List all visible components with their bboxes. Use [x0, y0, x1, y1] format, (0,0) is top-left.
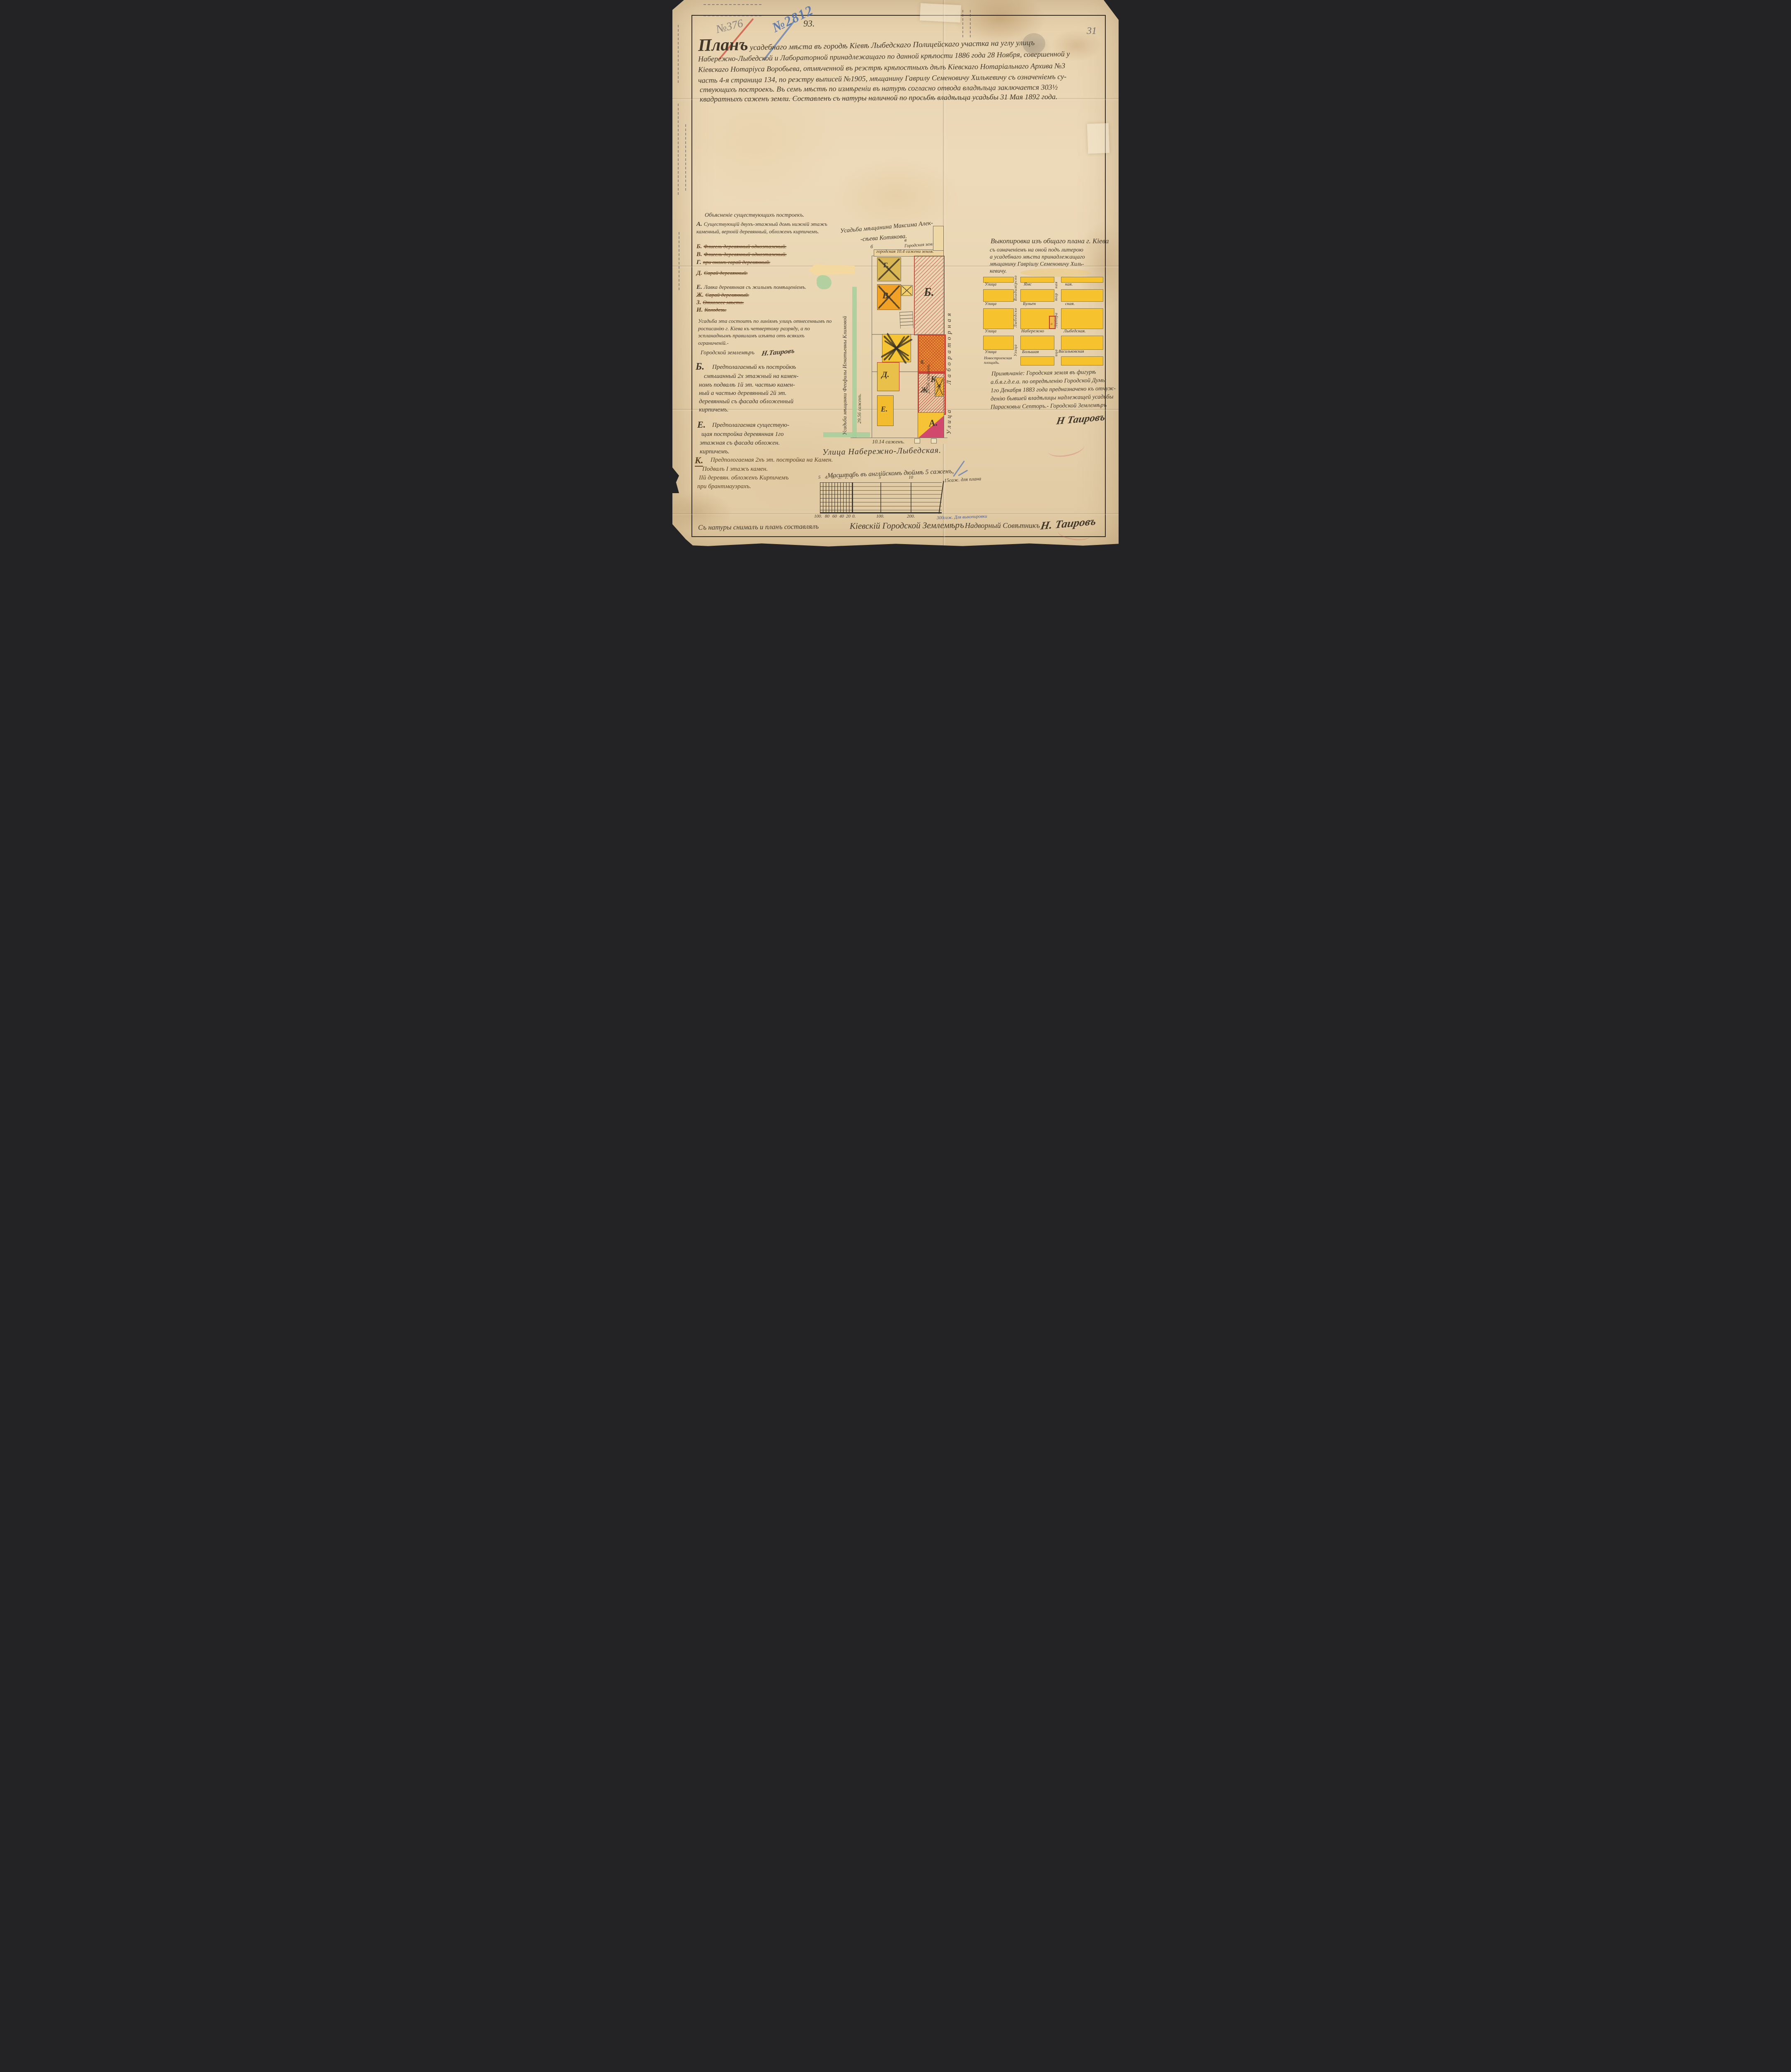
margin-dashes-2 [678, 104, 679, 195]
plan-tick: 4. [825, 475, 828, 480]
building-a-label: А. [928, 417, 938, 429]
map-street-yamskaya-w2: Ямс [1024, 282, 1032, 287]
building-e-label: Е. [881, 405, 888, 414]
city-block [1020, 336, 1054, 350]
title-line1: усадебнаго мѣста въ городѣ Кіевѣ Лыбедск… [750, 39, 1035, 52]
signer-signature: Н.Таировъ [761, 347, 795, 358]
attestation-text3: Надворный Совѣтникъ [965, 521, 1040, 530]
legend-text-b: Флигель деревянный одноэтажный. [703, 243, 786, 249]
tape-patch-right [1087, 123, 1109, 154]
signer-title: Городской землемѣръ [701, 350, 754, 356]
plan-tick: 5 [879, 475, 881, 480]
margin-dashes-1 [678, 25, 679, 83]
plan-tick: 2. [838, 475, 841, 480]
legend-text-a: Существующій двухъ-этажный домъ нижній э… [696, 221, 827, 235]
city-block [983, 308, 1014, 329]
legend-item-zh: Ж. Сарай деревянный. [696, 291, 833, 299]
vykopirovka-line2: съ означеніемъ на оной подъ литерою [990, 247, 1083, 254]
building-b-small-label: б. [921, 359, 925, 366]
plan-dim-left: 29.56 саженъ. [856, 357, 863, 424]
legend-item-i: И. Колодезь. [696, 306, 833, 314]
plan-owner-left-label: Усадьба мѣщанки Феофилы Игнатьевны Климо… [841, 288, 848, 435]
map-street-bulonskaya-w1: Улица [985, 301, 996, 306]
city-strip-label: городская 10.4 сажени земля. [876, 249, 934, 254]
corner-letter-v: в [904, 237, 906, 243]
section-e-line2: щая постройка деревянная 1го [701, 431, 784, 438]
map-tick: 100. [876, 514, 884, 519]
city-block [1020, 289, 1054, 302]
map-tick: 0. [852, 514, 856, 519]
section-k-line2: Подвалъ I этажъ камен. [702, 466, 768, 473]
map-street-nab-lybedskaya-w1: Улица [985, 329, 996, 334]
stairs-sketch [899, 311, 914, 329]
dashed-table-fragment-2 [703, 15, 761, 16]
city-block [1020, 356, 1054, 366]
plot-marker-letter: а [1051, 322, 1053, 326]
vykopirovka-line3: а усадебнаго мѣста принадлежащаго [990, 254, 1085, 261]
section-b-line2: смѣшанный 2х этажный на камен- [704, 373, 799, 380]
legend-text-v: Флигель деревянный одноэтажный. [704, 251, 787, 257]
dashed-table-fragment-1 [703, 4, 761, 5]
building-v: В. [877, 284, 901, 310]
margin-dashes-3 [685, 124, 686, 191]
section-b-line3: номъ подвалѣ 1й эт. частью камен- [699, 382, 795, 389]
building-zh-inset: Ж [935, 378, 944, 397]
building-d-label: Д. [882, 370, 889, 380]
map-tick: 100. [814, 514, 822, 519]
section-e-line4: кирпичемъ. [700, 448, 730, 455]
x-mark-icon [902, 286, 912, 295]
beige-arrow-strip [808, 264, 855, 275]
x-mark-icon [884, 336, 909, 360]
plan-tick: 0 [851, 475, 853, 480]
legend-text-d: Сарай деревянный. [704, 270, 748, 276]
map-tick: 60 [832, 514, 837, 519]
gate-mark-2 [931, 438, 937, 443]
legend-text-e: Лавка деревянная съ жилымъ помѣщеніемъ. [704, 284, 807, 290]
building-a-corner: А. [918, 412, 944, 438]
map-vstreet2-seg1: ная [1054, 277, 1059, 288]
map-street-nab-lybedskaya-w2: Набережно [1021, 329, 1044, 334]
legend-letter-zh: Ж. [696, 292, 704, 298]
section-b-line5: деревянный съ фасада обложенный [699, 398, 793, 405]
building-b-label: Б. [924, 286, 934, 299]
building-shed-crossed [882, 334, 911, 362]
legend-text-g: при ономъ сарай деревянный. [703, 259, 770, 265]
city-block [1061, 356, 1103, 366]
map-tick: 20 [846, 514, 851, 519]
city-block [1061, 308, 1103, 329]
scale-ruler-mid1 [880, 482, 881, 512]
section-e-line3: этажная съ фасада обложен. [700, 440, 780, 447]
title-first-word: Планъ [698, 35, 748, 55]
legend-letter-e: Е. [696, 284, 702, 290]
legend-item-b: Б. Флигель деревянный одноэтажный. [696, 243, 833, 250]
legend-letter-d: Д. [696, 270, 702, 276]
legend-text-zh: Сарай деревянный. [706, 292, 749, 298]
map-tick: 80 [825, 514, 829, 519]
ink-number: 93. [803, 18, 815, 29]
building-v-label: В. [882, 290, 890, 301]
street-right-word: Улица [946, 393, 953, 434]
map-street-vasilkovskaya-w3: Васильковская [1059, 349, 1084, 354]
building-b-proposed: Б. [914, 256, 945, 335]
plan-tick: 5 [818, 475, 821, 480]
legend-letter-g: Г. [696, 259, 701, 266]
map-vstreet2-seg4: ица [1054, 338, 1059, 356]
section-b-line6: кирпичемъ. [699, 407, 729, 414]
tape-patch-top [920, 3, 961, 22]
map-street-bulonskaya-w3: ская. [1065, 301, 1075, 306]
attestation-text2: Кіевскій Городской Землемѣръ [850, 520, 964, 531]
legend-item-z: З. Отхожее мѣсто. [696, 299, 833, 306]
legend-header: Объясненіе существующихъ построекъ. [705, 212, 804, 219]
map-vstreet1-mid: Лыбедско [1014, 303, 1018, 327]
smudge-stain [1022, 33, 1045, 54]
building-b-lower: б. [918, 334, 946, 374]
city-block [983, 336, 1014, 350]
page-number: 31 [1087, 26, 1097, 37]
legend-text-i: Колодезь. [704, 307, 726, 313]
section-b-line1: Предполагаемый къ постройкѣ [712, 364, 796, 371]
stain-yellow-map [1020, 269, 1091, 277]
green-patch [817, 275, 831, 289]
street-right-name: Лабораторная [946, 248, 953, 385]
legend-item-v: В. Флигель деревянный одноэтажный. [696, 251, 833, 258]
margin-dashes-4 [679, 232, 679, 290]
section-e-letter: Е. [697, 419, 706, 430]
building-e: Е. [877, 395, 894, 426]
x-mark-icon [878, 259, 900, 280]
plan-tick: 10 [909, 475, 913, 480]
map-vstreet1-bottom: Улица [1014, 336, 1018, 356]
city-block [1061, 336, 1103, 350]
plan-tick: 1. [845, 475, 848, 480]
corner-letter-b: б [870, 244, 873, 250]
section-b-line4: ный а частью деревянный 2й эт. [699, 390, 787, 397]
city-excerpt-map: Улица Ямс кая. Улица Бульен ская. Улица … [982, 276, 1103, 366]
plan-dim-bottom: 10.14 саженъ. [872, 438, 905, 445]
legend-letter-a: А. [696, 221, 702, 228]
section-k-line1: Предпологаемая 2хъ эт. постройка на Каме… [711, 457, 833, 464]
section-k-line3: IIй деревян. обложенъ Кирпичемъ [699, 474, 789, 482]
neighbor-strip [933, 226, 944, 251]
section-b-letter: Б. [696, 361, 704, 373]
legend-paragraph: Усадьба эта состоитъ по линіямъ улицъ от… [698, 317, 835, 346]
legend-text-z: Отхожее мѣсто. [703, 299, 744, 305]
building-zh2-label: Ж [937, 383, 941, 389]
building-g: Г. [877, 257, 901, 281]
map-tick: 200. [907, 514, 915, 519]
map-street-yamskaya-w1: Улица [985, 282, 996, 287]
map-square-label: Новостроенская площадь. [984, 356, 1021, 366]
section-k-line4: при брантмауэрахъ. [697, 483, 751, 490]
city-block [983, 289, 1014, 302]
building-g-label: Г. [883, 261, 889, 269]
building-small-shed [901, 285, 913, 296]
vykopirovka-line5: кевичу. [990, 268, 1007, 275]
legend-letter-b: Б. [696, 243, 702, 250]
torn-notch-left [672, 467, 679, 493]
map-street-vasilkovskaya-w1: Улица [985, 349, 996, 354]
gate-mark-1 [914, 438, 920, 443]
scale-ruler-mid2 [911, 482, 911, 512]
plot-marker: а [1049, 316, 1056, 329]
section-k-letter: К. [695, 455, 703, 467]
legend-letter-z: З. [696, 299, 701, 306]
attestation-text1: Съ натуры снималъ и планъ составлялъ [698, 523, 819, 532]
map-vstreet2-seg2: тор [1054, 290, 1059, 301]
legend-letter-i: И. [696, 307, 703, 313]
map-street-yamskaya-w3: кая. [1065, 282, 1073, 287]
map-street-nab-lybedskaya-w3: Лыбедская. [1063, 329, 1086, 334]
scale-ruler-subdivided [820, 482, 853, 512]
map-street-bulonskaya-w2: Бульен [1023, 301, 1036, 306]
scanned-archival-plan: №376 №2812 93. 31 Планъ усадебнаго мѣста… [672, 0, 1119, 552]
map-street-vasilkovskaya-w2: Большая [1022, 349, 1039, 354]
torn-edge-bottom [672, 541, 1119, 549]
legend-item-g: Г. при ономъ сарай деревянный. [696, 259, 833, 266]
building-d: Д. [877, 362, 899, 391]
section-e-line1: Предполагаемая существую- [712, 422, 789, 429]
city-block [1061, 289, 1103, 302]
legend-item-a: А. Существующій двухъ-этажный домъ нижні… [696, 220, 833, 235]
legend-item-e: Е. Лавка деревянная съ жилымъ помѣщеніем… [696, 283, 837, 291]
map-tick: 40 [839, 514, 844, 519]
building-k: К. Ж Ж [918, 371, 946, 415]
plan-tick: 3. [831, 475, 835, 480]
legend-letter-v: В. [696, 251, 702, 258]
plan-dim-right: 29.56 саженъ. [925, 340, 931, 394]
paper-sheet: №376 №2812 93. 31 Планъ усадебнаго мѣста… [672, 0, 1119, 549]
legend-signer: Городской землемѣръ Н.Таировъ [701, 348, 795, 356]
map-vstreet1-top: Владимірско [1014, 276, 1018, 301]
vykopirovka-line4: мѣщанину Гавріилу Семеновичу Хиль- [990, 261, 1084, 268]
torn-corner-top-left [672, 0, 684, 10]
vykopirovka-line1: Выкопировка изъ общаго плана г. Кіева [991, 237, 1109, 245]
